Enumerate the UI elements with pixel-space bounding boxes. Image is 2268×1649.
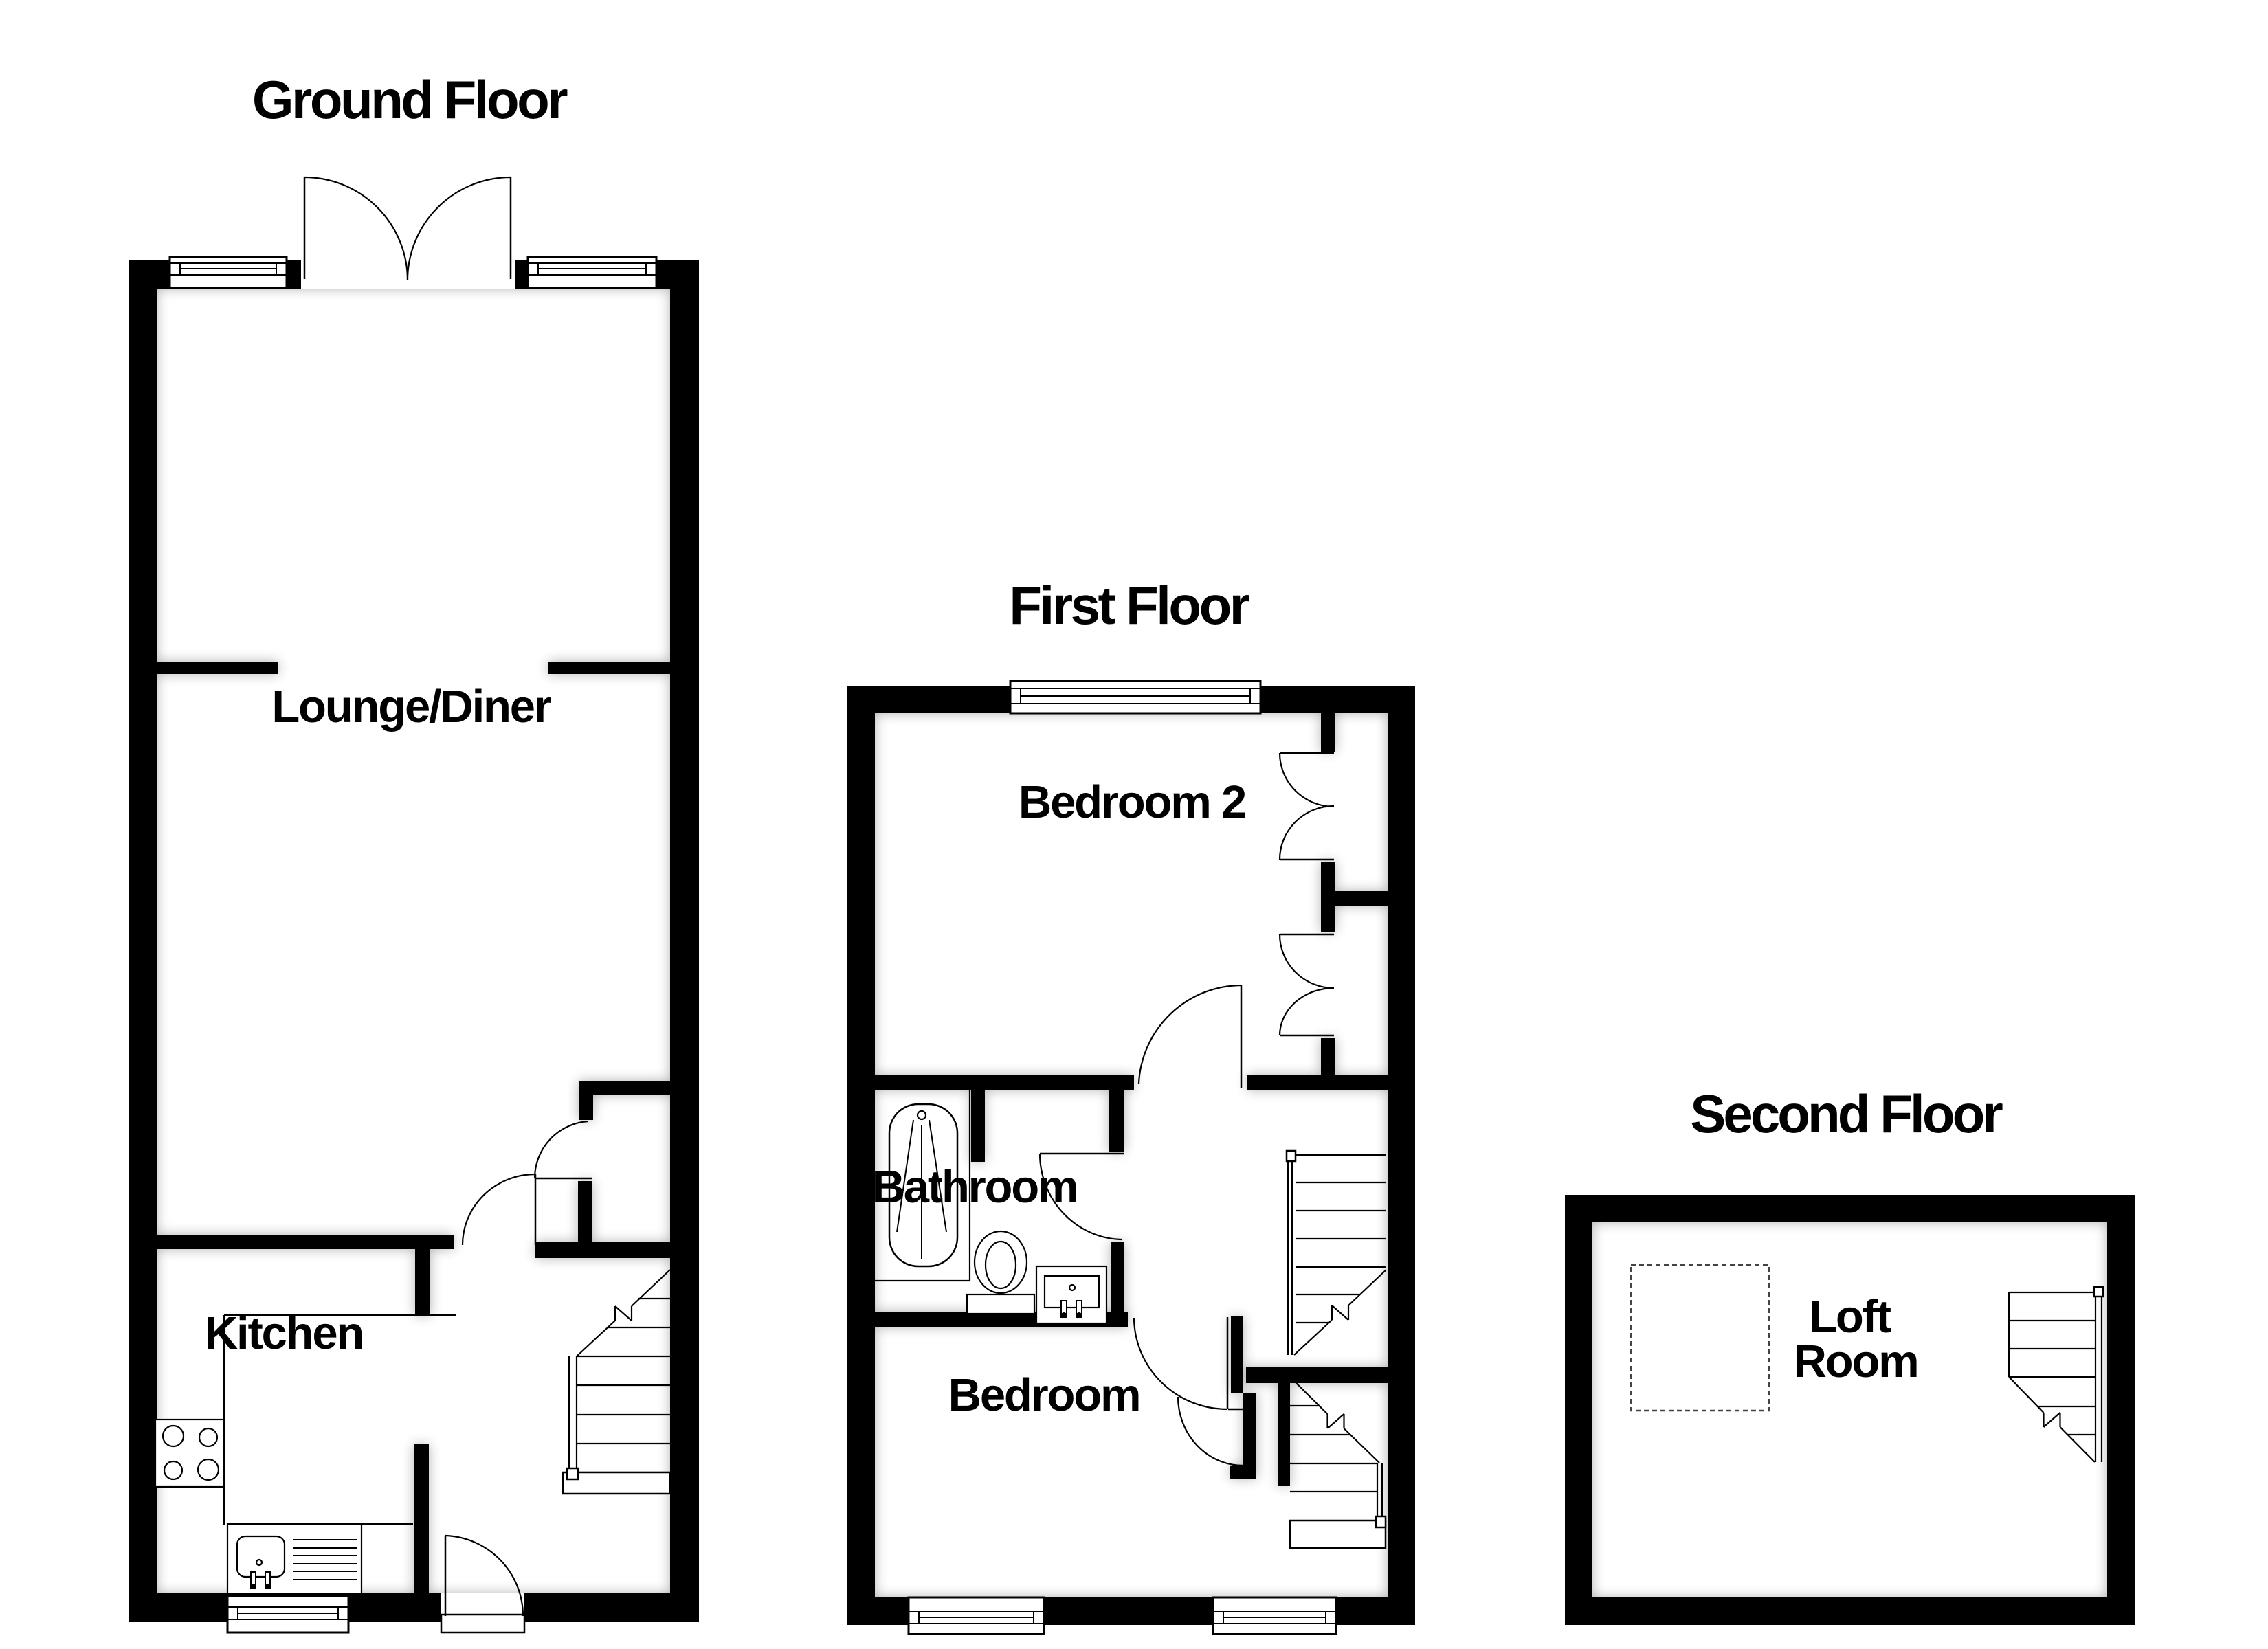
svg-text:Kitchen: Kitchen [205,1308,363,1359]
svg-text:Ground Floor: Ground Floor [252,69,568,130]
svg-text:Bedroom: Bedroom [948,1369,1140,1421]
svg-text:Second Floor: Second Floor [1690,1084,2003,1144]
svg-text:Room: Room [1793,1336,1917,1387]
svg-text:Bathroom: Bathroom [872,1161,1078,1213]
svg-text:Lounge/Diner: Lounge/Diner [271,681,551,732]
svg-text:Bedroom 2: Bedroom 2 [1019,776,1245,828]
svg-text:Loft: Loft [1809,1291,1891,1343]
svg-text:First Floor: First Floor [1009,575,1249,636]
